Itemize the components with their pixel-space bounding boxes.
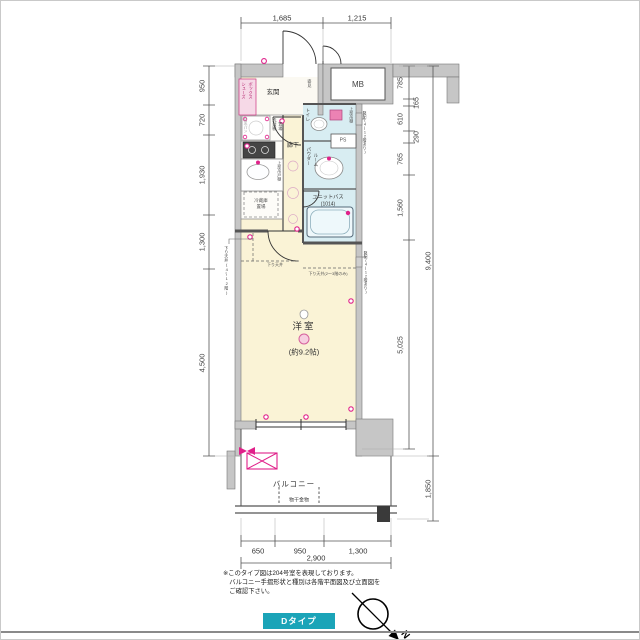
wall-left [235,64,241,456]
riser-bump-lower [356,257,362,267]
balcony-label: バルコニー [273,480,315,488]
meter-box-label: MB [352,81,364,89]
balcony-drain [377,506,390,522]
hallway-label: 廊下 [287,143,299,149]
western-room-label: 洋室 [292,322,315,332]
floorplan-drawing [1,1,640,640]
riser-label-lower: 竪配(4～12階あり) [364,251,368,294]
wall-bottom-left [235,421,256,429]
pipe-space-label: PS [340,139,347,144]
dim-right-3: 610 [398,113,405,125]
fridge-label-2: 置場 [257,205,266,210]
dim-balcony-depth: 1,850 [424,480,432,499]
drop-ceiling-label-2: 下り天井(2～3階のみ) [308,272,347,276]
ceiling-light-icon [299,334,309,344]
outlet-icon [304,415,308,419]
dim-left-3: 1,930 [198,166,206,185]
dim-right-5: 765 [398,153,405,165]
dim-right-6: 1,560 [398,199,405,217]
dim-right-2: 165 [414,97,421,109]
wall-genkan-right [318,64,323,115]
dim-right-4: 290 [414,131,421,143]
wall-block-bottom-right [356,419,393,456]
dim-left-1: 950 [198,80,206,93]
dim-left-5: 4,500 [198,354,206,373]
toilet-tank [330,110,342,120]
entrance-door-arc [283,31,316,64]
dim-bottom-total: 2,900 [307,554,326,562]
genkan-label: 玄関 [267,90,280,97]
outlet-icon [245,144,249,148]
shoe-box-label-1: シューズ [241,82,246,99]
powder-room-label-2: ルーム [313,153,318,167]
outlet-icon [248,235,252,239]
wall-bottom-right [346,421,356,429]
floorplan-page: 玄関 MB PS 廊下 ユニットバス (1014) 冷蔵庫 置場 洋室 (約9.… [0,0,640,640]
drop-ceiling-label-1: 下り天井 [267,263,283,267]
outlet-icon [262,59,267,64]
note-line-1: ※このタイプ図は204号室を表現しております。 [223,570,357,579]
wall-top-right-step [447,77,459,103]
wall-right [356,104,362,456]
wall-top-left [235,64,283,77]
fridge-label-1: 冷蔵庫 [254,199,268,204]
dim-top-1: 1,685 [273,14,292,22]
extension-top [241,29,391,63]
dim-right-total: 9,400 [424,252,432,271]
note-line-3: ご確認下さい。 [223,588,273,597]
unit-bath-label: ユニットバス [312,195,343,200]
note-line-2: バルコニー手摺形状と種別は各階平面図及び立面図を [223,579,380,588]
kitchen-faucet-icon [256,161,260,165]
washer-label-1: 洗濯機 [272,118,276,131]
mb-door-arc [323,46,341,64]
dim-left-2: 720 [198,114,206,127]
balcony-rail [235,506,397,513]
dim-right-7: 5,025 [398,336,405,354]
mirror-label: 姿見 [307,79,311,87]
laundry-hardware-label: 物干金物 [289,499,309,504]
outlet-icon [264,415,268,419]
toilet-shelf-label: 上部吊棚 [349,107,353,123]
type-badge: Dタイプ [263,613,335,629]
toilet-bowl [311,118,327,131]
drop-ceiling-label-3: 下り天井(4～12階) [224,246,228,295]
sheet-bottom-rule [1,631,639,633]
toilet-label: トイレ [305,108,310,122]
unit-bath-size-label: (1014) [321,203,335,208]
bath-faucet-icon [346,211,350,215]
waterproof-pan-label: 防水パン [244,118,248,133]
dim-bottom-1: 650 [252,547,265,555]
dim-left-4: 1,300 [198,233,206,252]
shoe-box-label-2: ボックス [248,82,253,99]
riser-bump-upper [356,113,362,125]
kitchen-shelf-label: 上部吊戸棚 [277,161,281,181]
powder-room-label-1: パウダー [306,147,311,165]
extension-bottom [241,518,391,535]
outlet-icon [349,299,353,303]
kitchen-sink [247,165,269,180]
washer-label-2: 置場 [278,122,282,130]
washbasin-faucet-icon [327,157,331,161]
wall-stub-left-outside [227,451,235,489]
western-room-size-label: (約9.2帖) [289,348,319,356]
outlet-icon [349,407,353,411]
dim-bottom-3: 1,300 [349,547,368,555]
outlet-icon [295,227,299,231]
detector-icon [300,310,308,319]
dim-top-2: 1,215 [348,14,367,22]
riser-label-upper: 竪配(4～12階あり) [363,111,367,154]
dim-bottom-2: 950 [294,547,307,555]
dim-right-1: 785 [398,77,405,89]
